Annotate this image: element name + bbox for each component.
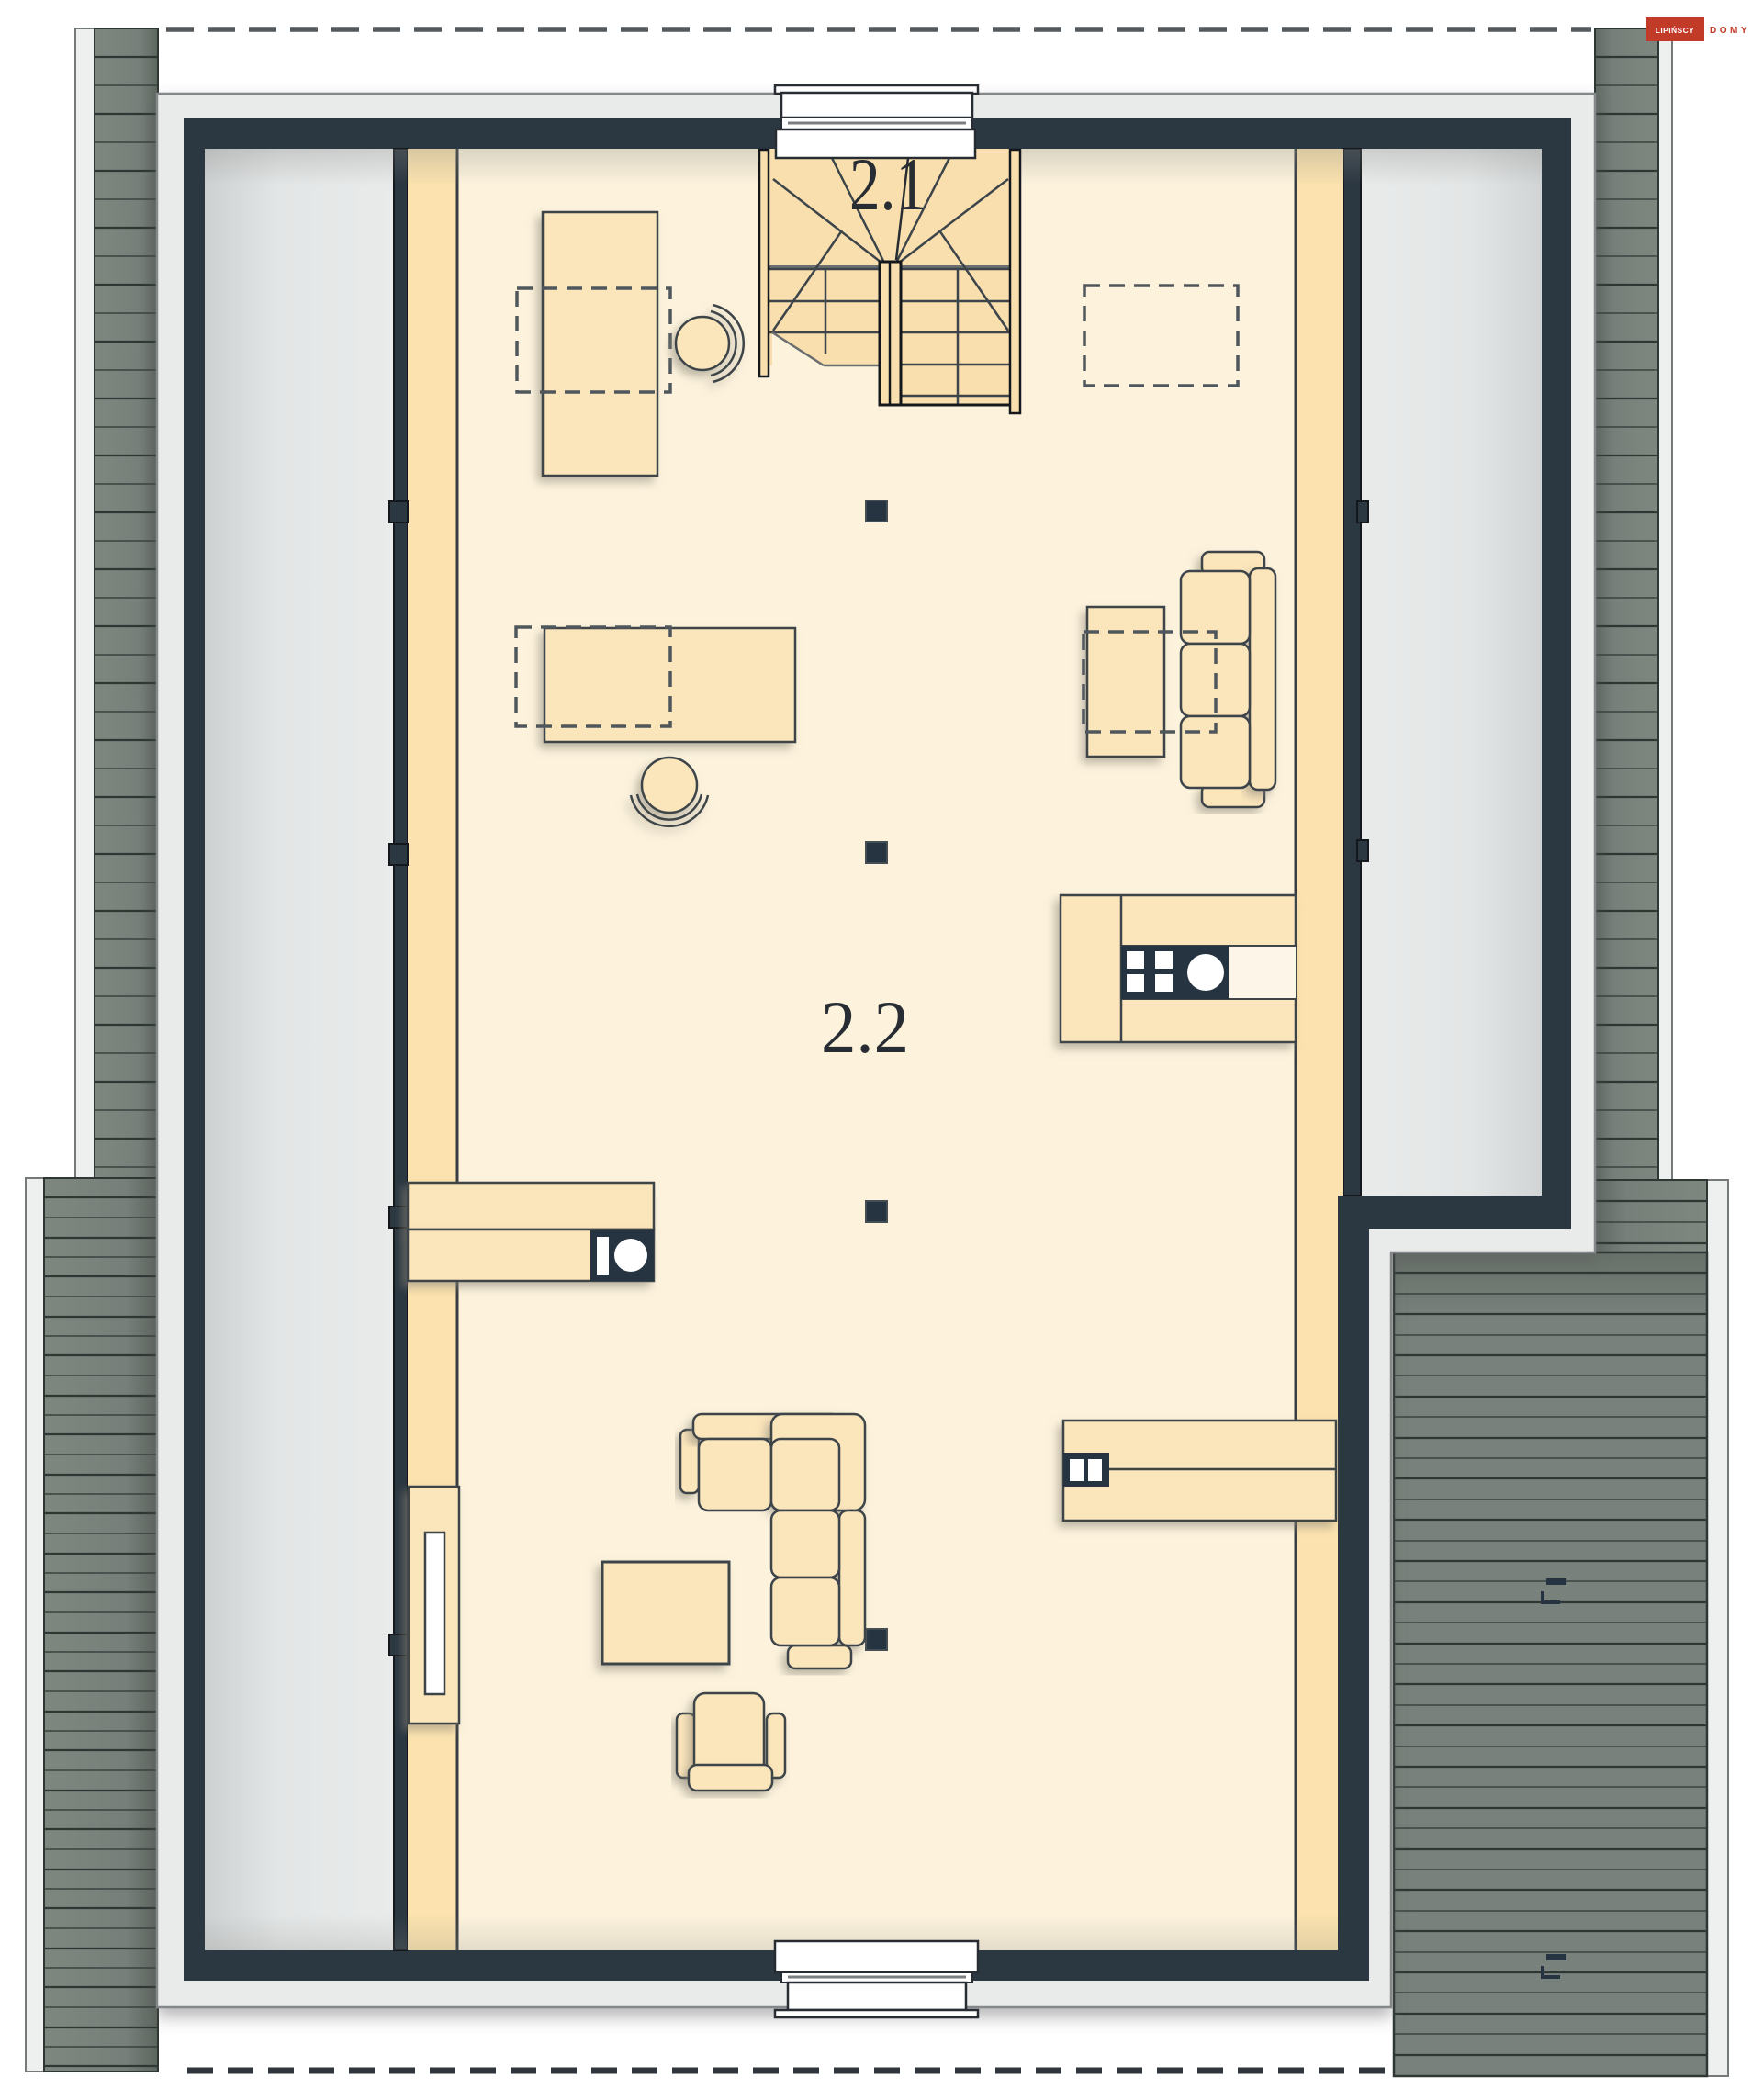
svg-text:DOMY: DOMY: [1710, 26, 1750, 36]
svg-text:2.1: 2.1: [849, 142, 926, 226]
svg-text:LIPIŃSCY: LIPIŃSCY: [1656, 26, 1694, 35]
svg-text:2.2: 2.2: [821, 985, 909, 1069]
